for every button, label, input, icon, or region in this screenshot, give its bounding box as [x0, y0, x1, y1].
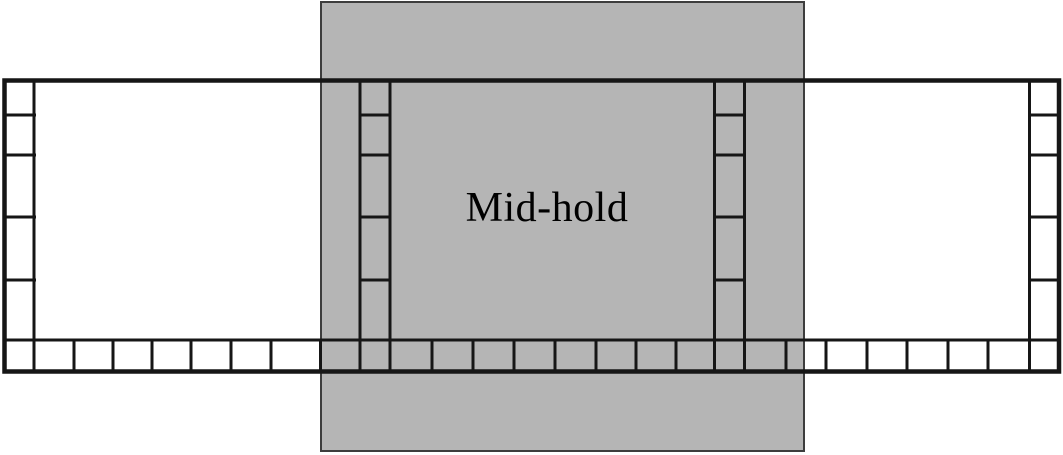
- mid-hold-label: Mid-hold: [466, 184, 629, 232]
- ship-hold-structural-diagram: Mid-hold: [0, 0, 1063, 455]
- right-column-cell-lines: [1028, 115, 1061, 280]
- left-column-cell-lines: [3, 115, 36, 280]
